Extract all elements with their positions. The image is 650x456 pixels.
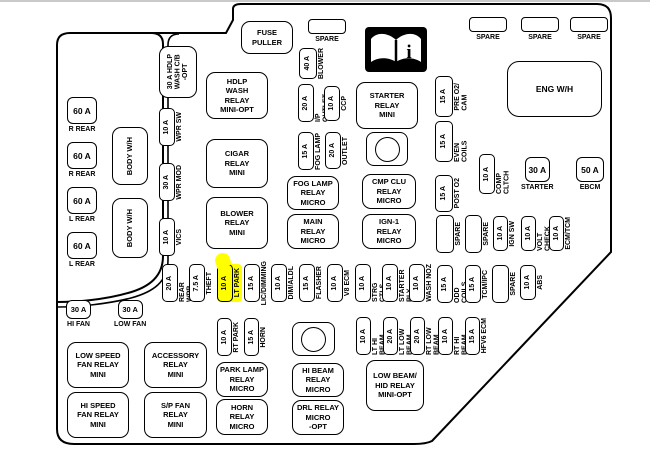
connector-label: BODY W/H (126, 209, 134, 247)
fuse-amp: 15 A (440, 89, 448, 104)
fuse-spare-right-2: SPARE (521, 17, 559, 41)
socket-circle (301, 327, 326, 352)
relay-hi-speed-fan: HI SPEED FAN RELAY MINI (67, 392, 129, 438)
fuse-label: BLOWER (318, 48, 326, 79)
fuse-amp: 7.5 A (193, 275, 201, 291)
fuse-label: CCP (341, 96, 349, 111)
fuse-label: LOW FAN (114, 321, 146, 328)
fuse-amp: 30 A (118, 300, 143, 319)
fuse-ecm-tcm: 10 A ECM/TCM (549, 216, 573, 251)
fuse-amp: 15 A (302, 144, 310, 159)
fuse-amp: 15 A (248, 330, 256, 345)
fuse-label: V8 ECM (344, 270, 352, 296)
connector-label: BODY W/H (126, 137, 134, 175)
fuse-lic-dimming: 15 A LIC/DIMMING (244, 264, 269, 302)
fuse-wpr-sw: 10 A WPR SW (159, 108, 184, 146)
fuse-starter-30a: 30 A STARTER (521, 157, 554, 191)
fuse-outlet: 20 A OUTLET (325, 132, 350, 169)
fuse-l-rear-1: 60 A L REAR (67, 187, 97, 223)
relay-low-beam-hid: LOW BEAM/ HID RELAY MINI-OPT (366, 360, 424, 411)
relay-cmp-clu: CMP CLU RELAY MICRO (362, 174, 416, 209)
fuse-label: SPARE (315, 36, 339, 43)
fuse-v8-ecm: 10 A V8 ECM (327, 264, 352, 302)
fuse-amp: 60 A (67, 97, 97, 124)
fuse-amp: 10 A (525, 226, 533, 241)
relay-cigar: CIGAR RELAY MINI (206, 139, 268, 188)
fuse-label: FOG LAMP (315, 133, 323, 170)
fuse-amp: 10 A (360, 329, 368, 344)
breaker-label: 30 A HDLP WASH C/B -OPT (167, 54, 190, 89)
image-top-edge (0, 0, 650, 2)
fuse-even-coils: 15 A EVEN COILS (435, 121, 469, 162)
relay-fog-lamp: FOG LAMP RELAY MICRO (287, 176, 339, 210)
fuse-horn: 15 A HORN (244, 318, 268, 356)
fuse-label: OUTLET (342, 137, 350, 165)
fuse-amp: 10 A (359, 276, 367, 291)
fuse-amp: 15 A (441, 277, 449, 292)
fuse-label: THEFT (206, 272, 214, 295)
fuse-amp: 10 A (524, 275, 532, 290)
relay-main: MAIN RELAY MICRO (287, 214, 339, 249)
fuse-label: RT PARK (233, 322, 241, 353)
fuse-spare-v1: SPARE (436, 215, 463, 253)
relay-ign1: IGN-1 RELAY MICRO (362, 214, 416, 249)
fuse-amp: 10 A (386, 276, 394, 291)
fuse-amp: 60 A (67, 232, 97, 259)
fuse-tcm-ipc: 15 A TCM/IPC (465, 265, 490, 303)
relay-hi-beam: HI BEAM RELAY MICRO (292, 363, 344, 397)
fuse-label: IGN SW (509, 221, 517, 247)
fuse-spare-top: SPARE (308, 19, 346, 43)
fuse-amp: 10 A (331, 276, 339, 291)
fuse-wash-noz: 10 A WASH NOZ (409, 264, 434, 302)
owners-manual-icon: i (365, 27, 427, 72)
fuse-amp: 30 A (163, 175, 171, 190)
fuse-amp: 10 A (328, 96, 336, 111)
fuse-volt-check: 10 A VOLT CHECK (521, 216, 552, 251)
fuse-label: DIM/ALDL (288, 266, 296, 299)
fuse-label: SPARE (510, 272, 518, 296)
fuse-ebcm-50a: 50 A EBCM (576, 157, 604, 191)
fuse-comp-cltch: 10 A COMP CLTCH (479, 154, 511, 194)
fuse-label: TCM/IPC (482, 270, 490, 299)
fuse-pre-o2-cam: 15 A PRE O2/ CAM (435, 76, 469, 117)
fuse-blower: 40 A BLOWER (299, 48, 326, 79)
svg-text:i: i (406, 42, 411, 63)
fuse-hi-fan: 30 A HI FAN (66, 300, 91, 328)
relay-sp-fan: S/P FAN RELAY MINI (144, 392, 207, 438)
fuse-label: WPR SW (176, 112, 184, 142)
fuse-amp: 60 A (67, 142, 97, 169)
fuse-label: HI FAN (67, 321, 90, 328)
fuse-wpr-mod: 30 A WPR MOD (159, 163, 184, 201)
relay-hdlp-wash: HDLP WASH RELAY MINI-OPT (206, 72, 268, 119)
fuse-body (521, 17, 559, 32)
fuse-amp: 20 A (329, 143, 337, 158)
fuse-lt-park-highlighted: 10 A LT PARK (217, 264, 242, 302)
fuse-label: SPARE (577, 34, 601, 41)
body-wh-connector-2: BODY W/H (112, 198, 148, 258)
socket-circle (375, 137, 400, 162)
fuse-body (570, 17, 608, 32)
fuse-label: POST O2 (454, 178, 462, 208)
fuse-box-diagram: i 60 A R REAR 60 A R REAR 60 A L REAR 60… (0, 0, 650, 456)
fuse-amp: 15 A (248, 276, 256, 291)
fuse-label: EVEN COILS (454, 121, 469, 162)
fuse-amp: 10 A (442, 329, 450, 344)
fuse-label: R REAR (69, 171, 96, 178)
relay-socket-2 (292, 322, 335, 356)
fuse-amp: 40 A (304, 56, 312, 71)
fuse-body (469, 17, 507, 32)
fuse-ign-sw: 10 A IGN SW (493, 216, 517, 251)
fuse-amp: 15 A (303, 276, 311, 291)
fuse-theft: 7.5 A THEFT (189, 264, 214, 302)
fuse-ccp: 10 A CCP (324, 86, 349, 121)
fuse-spare-v2: SPARE (465, 215, 491, 253)
fuse-amp: 10 A (163, 230, 171, 245)
fuse-rt-park: 10 A RT PARK (217, 318, 241, 356)
fuse-amp: 10 A (553, 226, 561, 241)
fuse-label: COMP CLTCH (496, 154, 511, 194)
fuse-amp: 10 A (483, 167, 491, 182)
fuse-label: SPARE (476, 34, 500, 41)
fuse-amp: 15 A (440, 134, 448, 149)
fuse-amp: 20 A (387, 329, 395, 344)
fuse-amp: 50 A (576, 157, 604, 182)
fuse-label: SPARE (528, 34, 552, 41)
fuse-label: SPARE (455, 222, 463, 246)
body-wh-connector-1: BODY W/H (112, 127, 148, 185)
fuse-label: WASH NOZ (426, 264, 434, 302)
fuse-dim-aldl: 10 A DIM/ALDL (271, 264, 296, 302)
fuse-amp: 15 A (440, 186, 448, 201)
fuse-amp: 60 A (67, 187, 97, 214)
fuse-amp: 30 A (525, 157, 550, 182)
fuse-rt-low-beam: 20 A RT LOW BEAM (410, 317, 441, 355)
relay-socket-1 (366, 132, 408, 166)
fuse-abs: 10 A ABS (520, 265, 545, 300)
fuse-r-rear-2: 60 A R REAR (67, 142, 97, 178)
fuse-label: STARTER (521, 184, 554, 191)
fuse-l-rear-2: 60 A L REAR (67, 232, 97, 268)
fuse-amp: 15 A (469, 277, 477, 292)
fuse-amp: 10 A (497, 226, 505, 241)
fuse-label: VICS (176, 229, 184, 245)
relay-starter: STARTER RELAY MINI (356, 82, 418, 129)
fuse-label: FLASHER (316, 266, 324, 299)
eng-wh-connector: ENG W/H (507, 61, 602, 117)
fuse-body (308, 19, 346, 34)
fuse-amp: 10 A (221, 276, 229, 291)
fuse-label: WPR MOD (176, 165, 184, 200)
fuse-amp: 10 A (163, 120, 171, 135)
relay-accessory: ACCESSORY RELAY MINI (144, 342, 207, 388)
fuse-amp: 10 A (275, 276, 283, 291)
fuse-post-o2: 15 A POST O2 (435, 175, 462, 212)
fuse-amp: 30 A (66, 300, 91, 319)
breaker-hdlp-wash: 30 A HDLP WASH C/B -OPT (159, 46, 197, 98)
fuse-label: HFV6 ECM (481, 318, 489, 353)
fuse-hfv6-ecm: 15 A HFV6 ECM (465, 317, 489, 355)
fuse-vics: 10 A VICS (159, 218, 184, 256)
fuse-amp: 10 A (413, 276, 421, 291)
fuse-label: HORN (260, 327, 268, 348)
fuse-spare-right-1: SPARE (469, 17, 507, 41)
fuse-label: LIC/DIMMING (261, 261, 269, 305)
fuse-amp: 20 A (302, 96, 310, 111)
fuse-label: SPARE (483, 222, 491, 246)
fuse-label: EBCM (580, 184, 601, 191)
relay-park-lamp: PARK LAMP RELAY MICRO (216, 362, 268, 397)
fuse-label: L REAR (69, 261, 95, 268)
fuse-r-rear-1: 60 A R REAR (67, 97, 97, 133)
relay-drl: DRL RELAY MICRO -OPT (292, 400, 344, 435)
fuse-label: R REAR (69, 126, 96, 133)
fuse-amp: 20 A (414, 329, 422, 344)
fuse-label: PRE O2/ CAM (454, 83, 469, 111)
fuse-label: L REAR (69, 216, 95, 223)
relay-blower: BLOWER RELAY MINI (206, 197, 268, 249)
fuse-amp: 20 A (166, 276, 174, 291)
fuse-flasher: 15 A FLASHER (299, 264, 324, 302)
fuse-fog-lamp: 15 A FOG LAMP (298, 132, 323, 170)
fuse-amp: 15 A (469, 329, 477, 344)
relay-horn: HORN RELAY MICRO (216, 399, 268, 435)
fuse-spare-v3: SPARE (492, 265, 518, 303)
fuse-label: ABS (537, 275, 545, 290)
fuse-label: ECM/TCM (565, 217, 573, 250)
relay-low-speed-fan: LOW SPEED FAN RELAY MINI (67, 342, 129, 388)
fuse-amp: 10 A (221, 330, 229, 345)
fuse-spare-right-3: SPARE (570, 17, 608, 41)
fuse-puller: FUSE PULLER (241, 21, 293, 54)
fuse-low-fan: 30 A LOW FAN (114, 300, 146, 328)
fuse-label: LT PARK (234, 268, 242, 297)
